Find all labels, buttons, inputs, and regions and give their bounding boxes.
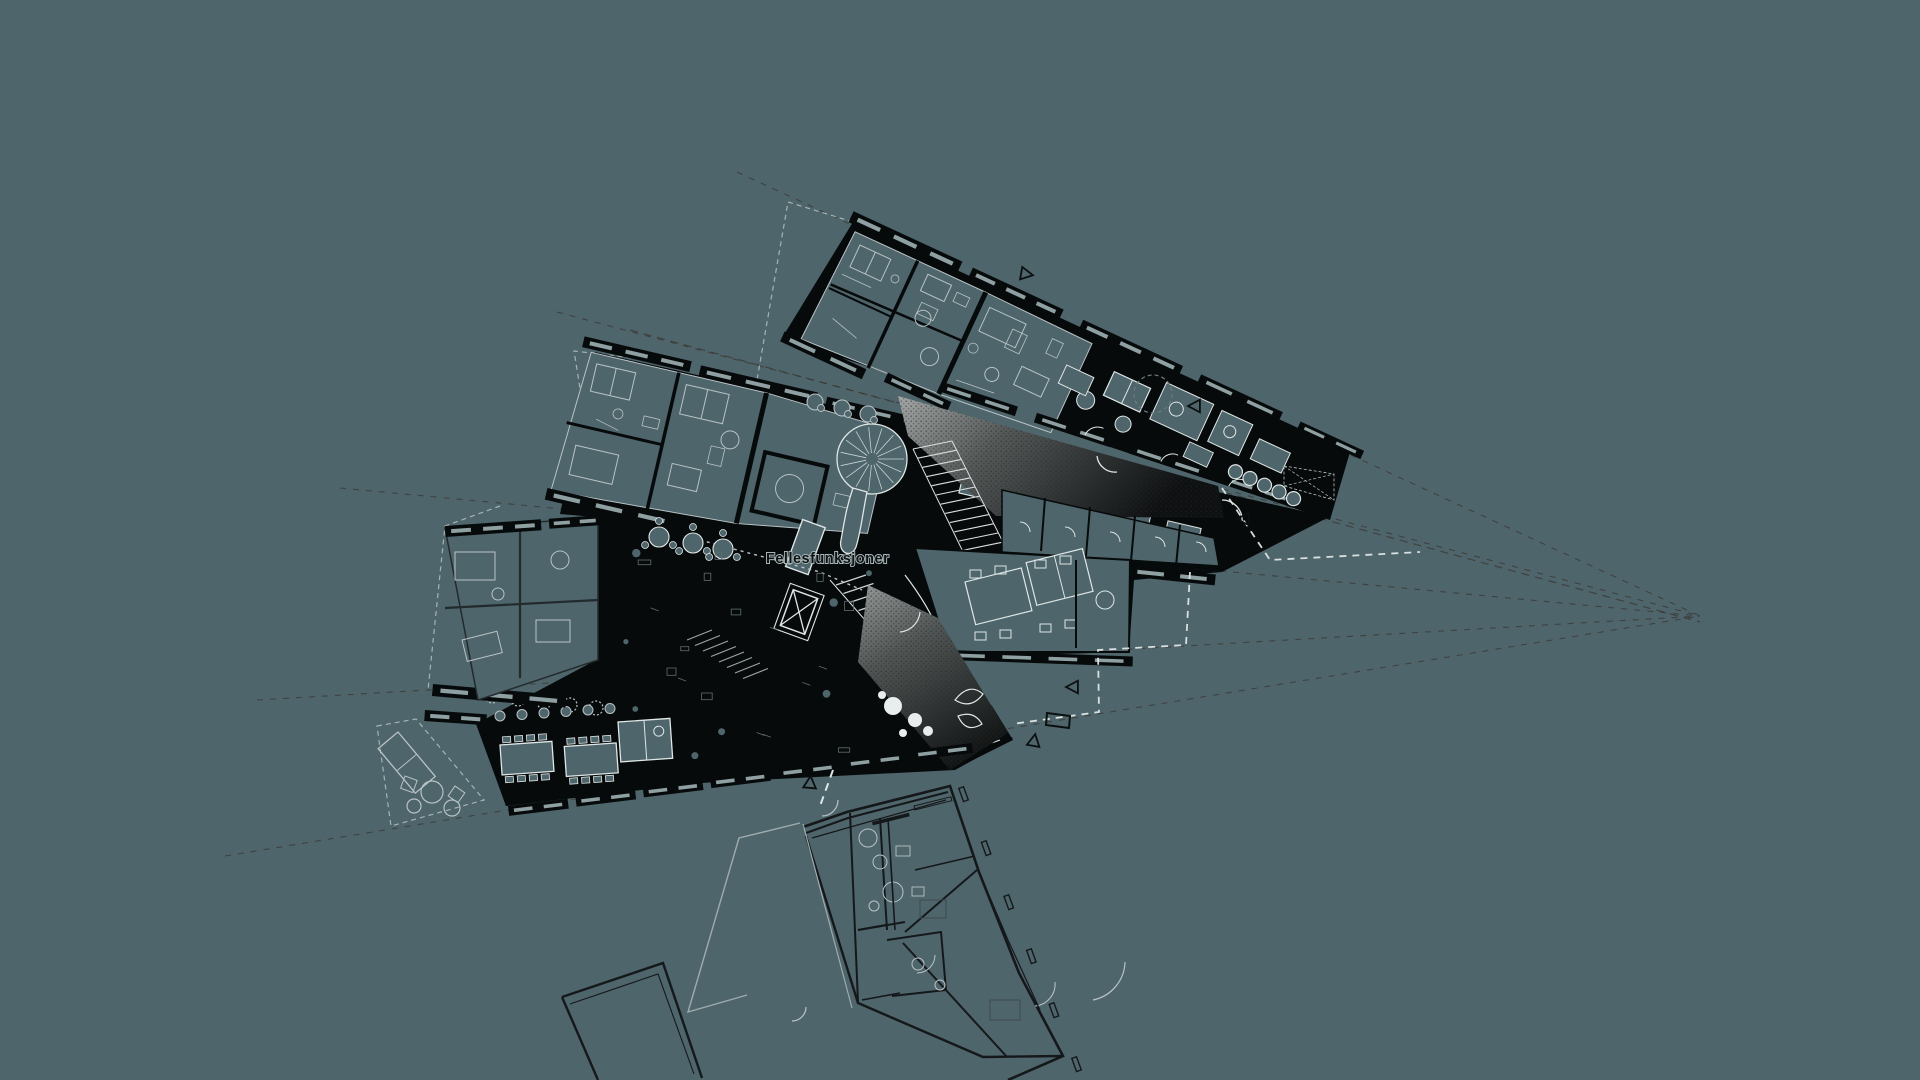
svg-text:Fellesfunksjoner: Fellesfunksjoner [766, 551, 889, 567]
